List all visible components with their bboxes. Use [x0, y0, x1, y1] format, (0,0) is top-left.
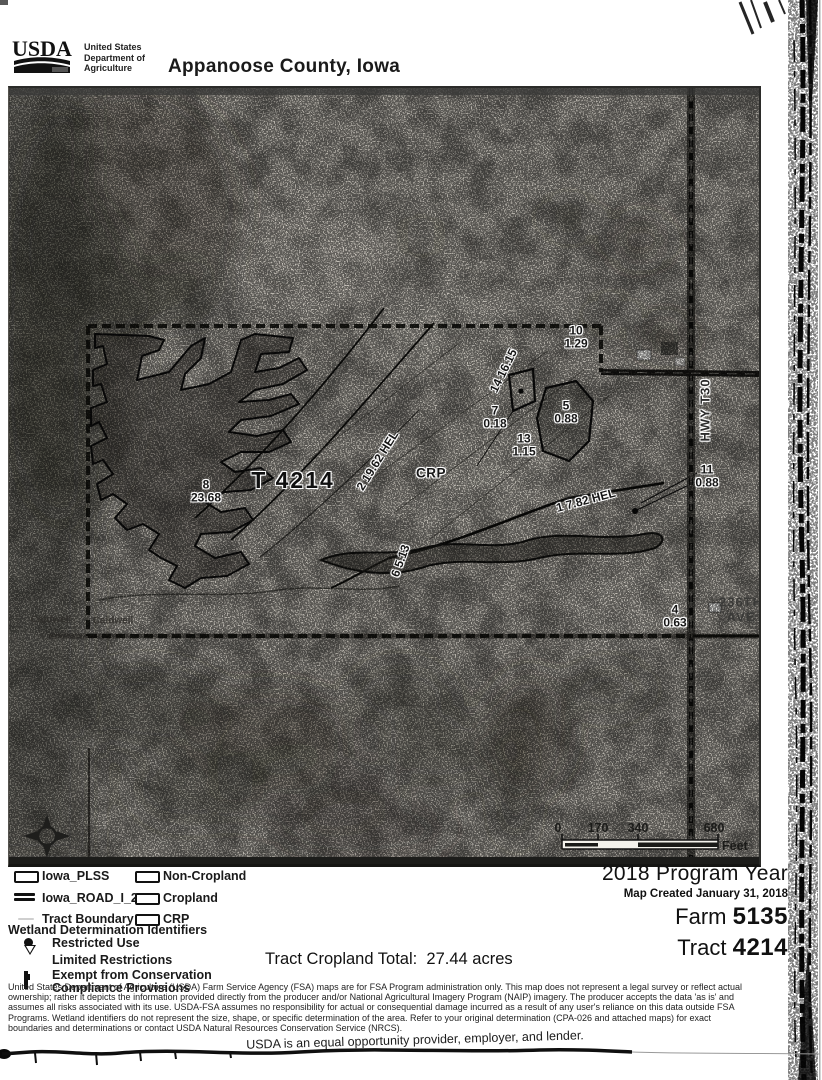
map-info-block: 2018 Program Year Map Created January 31…: [470, 862, 788, 962]
disclaimer-line-2: ownership; rather it depicts the informa…: [8, 992, 768, 1002]
tract-number-label: T 4214: [251, 468, 335, 494]
scan-streak-artifact: [786, 0, 822, 1080]
scale-tick-680: 680: [704, 821, 725, 835]
road-swatch-icon: [14, 893, 35, 901]
dept-line3: Agriculture: [84, 63, 145, 74]
department-text: United States Department of Agriculture: [84, 42, 145, 74]
scale-tick-0: 0: [555, 821, 562, 835]
map-created-date: Map Created January 31, 2018: [470, 888, 788, 900]
aerial-map-svg: 0 170 340 680 Feet: [9, 88, 759, 864]
field-5-acres: 0.88: [554, 413, 577, 426]
dept-line2: Department of: [84, 53, 145, 64]
corner-scan-marks: [735, 0, 795, 38]
field-7-label: 7 0.18: [483, 405, 506, 432]
usda-logo: USDA: [12, 38, 74, 78]
cropland-total: Tract Cropland Total: 27.44 acres: [265, 950, 513, 969]
noncropland-swatch-icon: [135, 871, 160, 883]
field-10-acres: 1.29: [564, 338, 587, 351]
236th-ave-label: 236TH AVE: [719, 595, 761, 624]
field-4-label: 4 0.63: [663, 604, 686, 631]
cropland-total-label: Tract Cropland Total:: [265, 950, 417, 968]
disclaimer-line-4: Programs. Wetland identifiers do not rep…: [8, 1013, 768, 1023]
field-8-acres: 23.68: [191, 492, 221, 505]
field-7-acres: 0.18: [483, 418, 506, 431]
legend-label-iowa-plss: Iowa_PLSS: [42, 869, 109, 883]
scanned-fsa-map-page: { "header": { "logo_text": "USDA", "dept…: [0, 0, 822, 1080]
page-header: USDA United States Department of Agricul…: [0, 0, 822, 86]
field-5-label: 5 0.88: [554, 400, 577, 427]
plss-swatch-icon: [14, 871, 39, 883]
wetland-heading: Wetland Determination Identifiers: [8, 923, 207, 937]
236th-ave-line1: 236TH: [719, 595, 761, 610]
farm-number: 5135: [733, 903, 788, 930]
caldwell-label-b: Caldwell: [93, 615, 134, 626]
scale-tick-170: 170: [588, 821, 609, 835]
scale-unit: Feet: [722, 839, 749, 853]
photo-top-edge: [9, 88, 759, 95]
tract-number: 4214: [733, 934, 788, 961]
scale-tick-340: 340: [628, 821, 649, 835]
field-13-acres: 1.15: [512, 446, 535, 459]
tract-label: Tract: [677, 935, 726, 960]
page-title: Appanoose County, Iowa: [168, 56, 400, 78]
crp-label: CRP: [416, 465, 446, 480]
caldwell-label-a: Caldwell: [31, 614, 72, 625]
legend-label-limited-restrictions: Limited Restrictions: [52, 953, 172, 967]
film-grain: [9, 88, 759, 864]
bottom-scan-edge: [0, 1040, 822, 1070]
field-4-acres: 0.63: [663, 617, 686, 630]
236th-ave-line2: AVE: [719, 610, 761, 625]
farm-label: Farm: [675, 904, 726, 929]
field-10-label: 10 1.29: [564, 325, 587, 352]
program-year: 2018 Program Year: [470, 862, 788, 886]
tract-number-line: Tract 4214: [470, 934, 788, 962]
disclaimer-line-3: assumes all risks associated with its us…: [8, 1002, 768, 1012]
legend-label-restricted-use: Restricted Use: [52, 936, 140, 950]
cropland-swatch-icon: [135, 893, 160, 905]
field-11-label: 11 0.88: [695, 464, 718, 491]
disclaimer-line-1: United States Department of Agriculture …: [8, 982, 768, 992]
field-8-label: 8 23.68: [191, 479, 221, 506]
legend-label-noncropland: Non-Cropland: [163, 869, 246, 883]
scan-spot-artifact: [0, 0, 8, 5]
field-11-acres: 0.88: [695, 477, 718, 490]
legend-label-cropland: Cropland: [163, 891, 218, 905]
usda-logo-field: [52, 67, 68, 72]
aerial-map: 0 170 340 680 Feet T 4214 8 23.68 10 1.2…: [8, 86, 761, 867]
limited-restrictions-icon: [24, 945, 36, 969]
farm-number-line: Farm 5135: [470, 903, 788, 931]
field-13-label: 13 1.15: [512, 433, 535, 460]
dept-line1: United States: [84, 42, 145, 53]
hwy-t30-label: HWY T30: [699, 378, 714, 441]
cropland-total-value: 27.44 acres: [426, 950, 512, 968]
